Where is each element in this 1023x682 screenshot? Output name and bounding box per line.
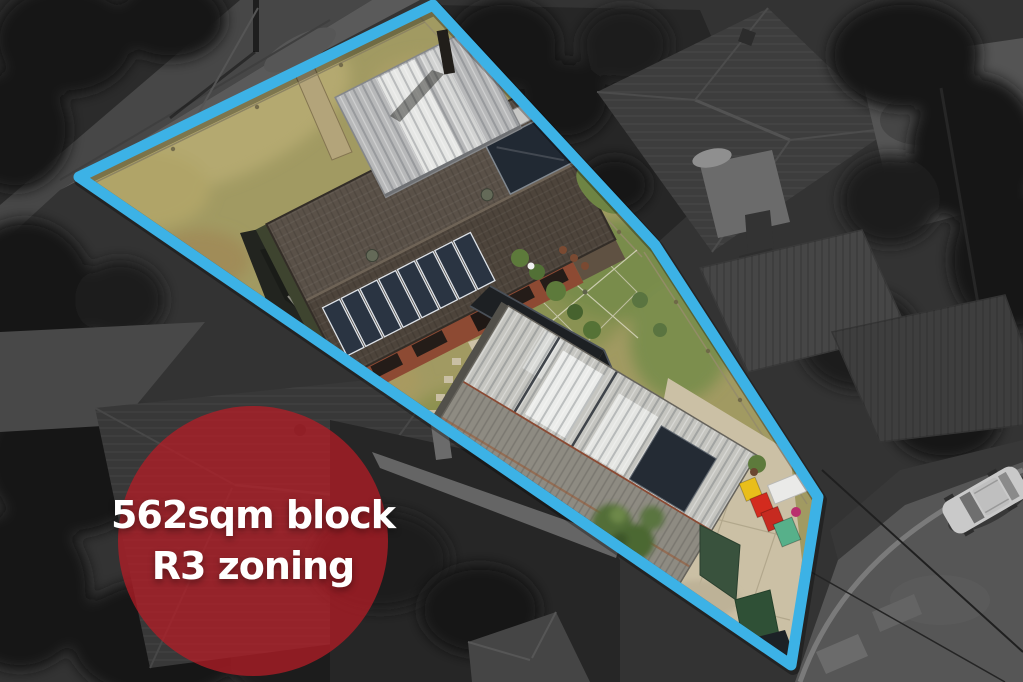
magenta-object [791,507,801,517]
zoning-badge: 562sqm block R3 zoning [118,406,388,676]
aerial-property-photo: 562sqm block R3 zoning [0,0,1023,682]
utility-pole [253,0,259,52]
white-bird-ornament [528,263,535,270]
badge-zoning: R3 zoning [152,546,355,588]
badge-block-size: 562sqm block [111,495,395,537]
